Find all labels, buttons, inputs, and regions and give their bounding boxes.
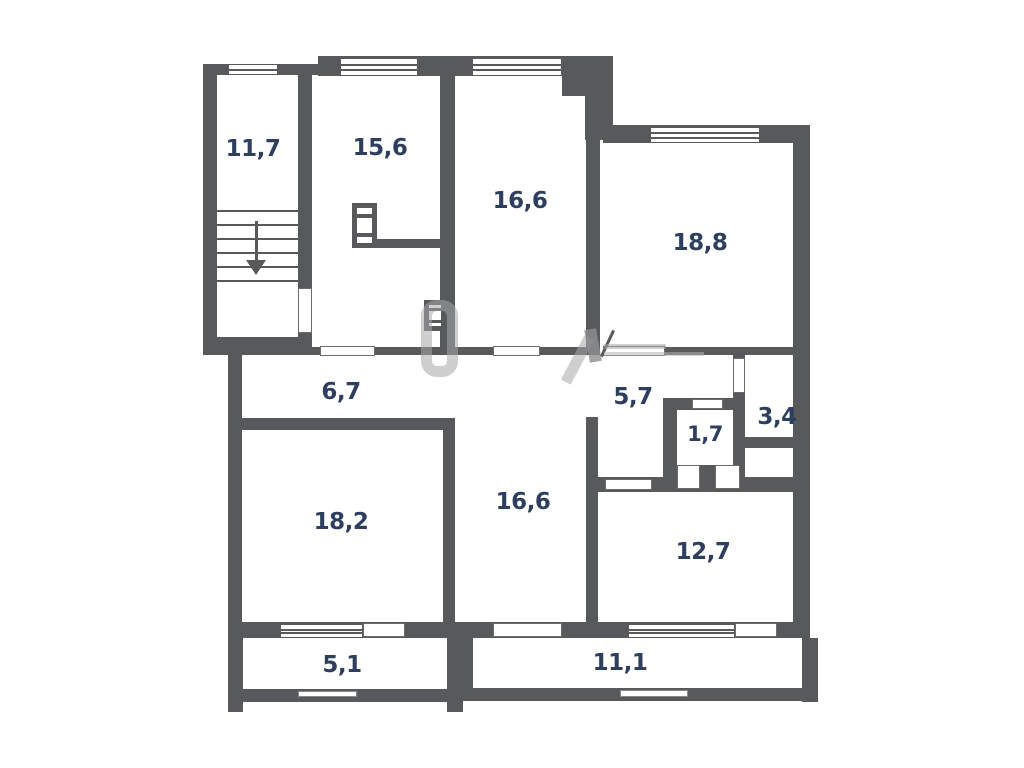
stairwell-window <box>228 64 278 75</box>
floor-plan: 11,7 15,6 16,6 18,8 6,7 5,7 1,7 3,4 18,2… <box>0 0 1024 768</box>
vent-divider <box>357 233 372 237</box>
room188-window <box>650 127 760 143</box>
stair-tread <box>217 252 298 254</box>
room182-window <box>280 624 363 638</box>
stair-tread <box>217 224 298 226</box>
balcony-rail <box>620 690 688 697</box>
room34-bottom-wall <box>743 437 793 448</box>
ventilation-shaft <box>352 203 377 248</box>
room-area-label: 11,7 <box>226 136 281 162</box>
right-outer-wall <box>793 125 810 638</box>
window-pane-line <box>651 132 759 134</box>
watermark <box>604 352 704 356</box>
left-outer-wall <box>228 345 242 638</box>
balcony-door-127 <box>735 623 777 637</box>
room-area-label: 11,1 <box>593 650 648 676</box>
stairwell-right-wall <box>298 64 312 288</box>
room-area-label: 5,1 <box>322 652 361 678</box>
corridor-top-wall <box>310 347 320 355</box>
room166-window <box>472 58 562 76</box>
room-area-label: 12,7 <box>676 539 731 565</box>
window-pane-line <box>629 629 734 631</box>
room-area-label: 3,4 <box>757 404 796 430</box>
balcony-door-166 <box>493 623 562 637</box>
room-area-label: 5,7 <box>613 384 652 410</box>
corridor-bottom-wall <box>228 418 455 430</box>
stairwell-bottom-wall <box>203 337 310 355</box>
room-area-label: 16,6 <box>496 489 551 515</box>
room-area-label: 15,6 <box>353 135 408 161</box>
window-pane-line <box>341 69 417 71</box>
window-pane-line <box>473 64 561 66</box>
wc-door <box>677 465 700 489</box>
window-pane-line <box>229 69 277 71</box>
room127-window <box>628 624 735 638</box>
window-pane-line <box>651 137 759 139</box>
stairs-arrow-shaft <box>255 221 258 263</box>
watermark <box>421 300 458 377</box>
balcony-right-wall <box>802 638 818 702</box>
stairs-arrow-head <box>246 260 266 275</box>
window-pane-line <box>629 632 734 634</box>
wall-166-188 <box>586 56 600 355</box>
window-pane-line <box>281 629 362 631</box>
window-pane-line <box>281 632 362 634</box>
wall-182-166 <box>443 418 455 622</box>
stair-left-wall <box>203 64 217 355</box>
room156-window <box>340 58 418 76</box>
stair-tread <box>217 238 298 240</box>
stair-tread <box>217 280 298 282</box>
duct-door <box>715 465 740 489</box>
window-pane-line <box>341 64 417 66</box>
balcony-door-182 <box>363 623 405 637</box>
room-area-label: 18,8 <box>673 230 728 256</box>
watermark <box>604 344 666 349</box>
room-area-label: 18,2 <box>314 509 369 535</box>
stair-tread <box>217 210 298 212</box>
room166-door <box>493 346 540 356</box>
room34-door <box>733 358 745 393</box>
room127-door <box>605 479 652 490</box>
stairwell-door <box>298 288 312 333</box>
window-pane-line <box>473 69 561 71</box>
vent-divider <box>357 214 372 218</box>
corridor-door <box>320 346 375 356</box>
balcony-rail <box>298 691 357 697</box>
room-area-label: 1,7 <box>687 422 723 446</box>
room-area-label: 16,6 <box>493 188 548 214</box>
wc-hatch <box>692 399 723 409</box>
room-area-label: 6,7 <box>321 379 360 405</box>
wall-166-127 <box>586 417 598 622</box>
